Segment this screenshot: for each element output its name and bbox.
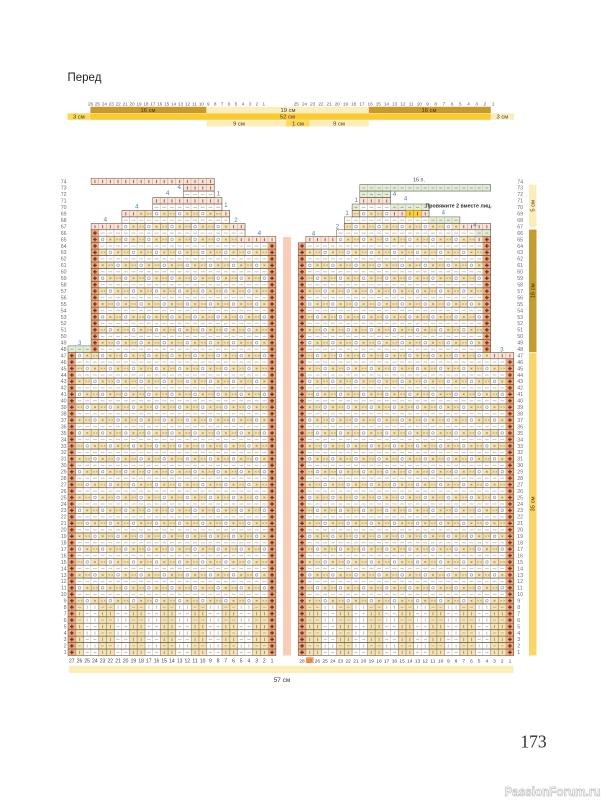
svg-text:1: 1 xyxy=(64,650,67,656)
svg-text:7: 7 xyxy=(443,102,446,107)
svg-text:25: 25 xyxy=(517,495,523,501)
svg-text:67: 67 xyxy=(517,224,523,230)
svg-text:23: 23 xyxy=(109,102,115,107)
svg-text:31: 31 xyxy=(61,457,67,463)
svg-text:63: 63 xyxy=(61,250,67,256)
svg-text:21: 21 xyxy=(517,521,523,527)
svg-text:1: 1 xyxy=(263,102,266,107)
svg-text:28: 28 xyxy=(517,476,523,482)
svg-text:15: 15 xyxy=(376,102,382,107)
svg-text:21: 21 xyxy=(61,521,67,527)
svg-text:1: 1 xyxy=(217,191,221,198)
svg-text:14: 14 xyxy=(384,102,390,107)
svg-text:49: 49 xyxy=(517,341,523,347)
svg-text:18: 18 xyxy=(517,541,523,547)
svg-text:59: 59 xyxy=(61,276,67,282)
svg-text:2: 2 xyxy=(64,644,67,650)
svg-text:9: 9 xyxy=(447,658,450,664)
svg-text:56: 56 xyxy=(61,295,67,301)
svg-text:55: 55 xyxy=(517,302,523,308)
svg-text:17: 17 xyxy=(146,658,152,664)
svg-text:4: 4 xyxy=(442,209,446,216)
svg-text:16: 16 xyxy=(154,658,160,664)
svg-text:4: 4 xyxy=(393,191,397,198)
svg-text:23: 23 xyxy=(100,658,106,664)
svg-text:18: 18 xyxy=(138,658,144,664)
svg-text:38: 38 xyxy=(517,412,523,418)
svg-text:17: 17 xyxy=(359,102,365,107)
svg-text:33: 33 xyxy=(61,444,67,450)
svg-text:12: 12 xyxy=(423,658,429,664)
svg-text:43: 43 xyxy=(61,379,67,385)
svg-text:34: 34 xyxy=(517,437,523,443)
svg-text:3 см: 3 см xyxy=(73,115,85,121)
svg-text:70: 70 xyxy=(517,205,523,211)
svg-text:1 см: 1 см xyxy=(292,122,304,128)
svg-text:10: 10 xyxy=(438,658,444,664)
svg-text:56: 56 xyxy=(517,295,523,301)
svg-text:46: 46 xyxy=(61,360,67,366)
svg-text:3: 3 xyxy=(64,637,67,643)
svg-text:2: 2 xyxy=(256,102,259,107)
svg-text:25: 25 xyxy=(322,658,328,664)
svg-text:68: 68 xyxy=(517,218,523,224)
svg-text:4: 4 xyxy=(473,222,477,229)
svg-text:21: 21 xyxy=(327,102,333,107)
svg-text:67: 67 xyxy=(61,224,67,230)
svg-text:6: 6 xyxy=(228,102,231,107)
svg-text:11: 11 xyxy=(192,102,197,107)
svg-text:40: 40 xyxy=(61,399,67,405)
svg-text:5: 5 xyxy=(64,624,67,630)
svg-text:24: 24 xyxy=(102,102,108,107)
svg-text:72: 72 xyxy=(61,192,67,198)
svg-text:69: 69 xyxy=(517,212,523,218)
svg-text:8: 8 xyxy=(217,658,220,664)
svg-text:23: 23 xyxy=(61,508,67,514)
svg-text:47: 47 xyxy=(517,354,523,360)
svg-text:44: 44 xyxy=(61,373,67,379)
svg-text:37: 37 xyxy=(61,418,67,424)
svg-text:65: 65 xyxy=(61,237,67,243)
svg-text:50: 50 xyxy=(517,334,523,340)
svg-text:53: 53 xyxy=(517,315,523,321)
svg-text:69: 69 xyxy=(61,212,67,218)
svg-text:53: 53 xyxy=(61,315,67,321)
svg-text:15: 15 xyxy=(61,560,67,566)
svg-text:19: 19 xyxy=(369,658,375,664)
svg-text:18: 18 xyxy=(61,541,67,547)
svg-text:1: 1 xyxy=(509,658,512,664)
svg-text:70: 70 xyxy=(61,205,67,211)
svg-text:9: 9 xyxy=(517,599,520,605)
svg-text:61: 61 xyxy=(61,263,67,269)
svg-text:11: 11 xyxy=(409,102,414,107)
svg-text:68: 68 xyxy=(61,218,67,224)
svg-text:9: 9 xyxy=(207,102,210,107)
svg-text:3: 3 xyxy=(255,658,258,664)
svg-text:23: 23 xyxy=(517,508,523,514)
svg-text:8: 8 xyxy=(517,605,520,611)
svg-text:4: 4 xyxy=(258,230,262,237)
svg-text:20: 20 xyxy=(517,528,523,534)
svg-text:32: 32 xyxy=(517,450,523,456)
svg-text:7: 7 xyxy=(517,611,520,617)
svg-text:4: 4 xyxy=(166,190,170,197)
svg-text:12: 12 xyxy=(400,102,406,107)
svg-text:47: 47 xyxy=(61,354,67,360)
svg-text:16 п.: 16 п. xyxy=(413,178,425,184)
svg-text:23: 23 xyxy=(338,658,344,664)
svg-text:71: 71 xyxy=(517,199,523,205)
svg-text:1: 1 xyxy=(345,210,349,217)
svg-text:9: 9 xyxy=(426,102,429,107)
svg-text:4: 4 xyxy=(64,631,67,637)
svg-text:45: 45 xyxy=(517,366,523,372)
svg-text:27: 27 xyxy=(61,482,67,488)
svg-text:6: 6 xyxy=(64,618,67,624)
svg-text:48: 48 xyxy=(61,347,67,353)
svg-text:4: 4 xyxy=(517,631,520,637)
svg-text:52 см: 52 см xyxy=(280,115,295,121)
svg-text:27: 27 xyxy=(307,658,313,664)
svg-text:64: 64 xyxy=(517,244,523,250)
svg-text:3 см: 3 см xyxy=(497,115,509,121)
svg-text:22: 22 xyxy=(108,658,114,664)
svg-text:9 см: 9 см xyxy=(233,122,245,128)
svg-text:24: 24 xyxy=(517,502,523,508)
svg-text:57: 57 xyxy=(517,289,523,295)
svg-text:Провяжите 2 вместе лиц.: Провяжите 2 вместе лиц. xyxy=(426,204,493,210)
svg-text:44: 44 xyxy=(517,373,523,379)
svg-text:27: 27 xyxy=(69,658,75,664)
svg-text:2: 2 xyxy=(234,217,238,224)
svg-text:6: 6 xyxy=(470,658,473,664)
svg-text:46: 46 xyxy=(517,360,523,366)
svg-text:50: 50 xyxy=(61,334,67,340)
svg-text:33: 33 xyxy=(517,444,523,450)
svg-text:8: 8 xyxy=(64,605,67,611)
svg-text:4: 4 xyxy=(485,658,488,664)
svg-text:173: 173 xyxy=(520,732,547,752)
svg-text:9 см: 9 см xyxy=(333,122,345,128)
svg-text:4: 4 xyxy=(404,195,408,202)
svg-text:15: 15 xyxy=(517,560,523,566)
svg-text:35: 35 xyxy=(517,431,523,437)
svg-text:22: 22 xyxy=(346,658,352,664)
svg-text:1: 1 xyxy=(517,650,520,656)
svg-text:14: 14 xyxy=(407,658,413,664)
svg-text:18: 18 xyxy=(351,102,357,107)
svg-text:66: 66 xyxy=(61,231,67,237)
svg-text:73: 73 xyxy=(61,186,67,192)
svg-text:35 см: 35 см xyxy=(531,497,537,512)
svg-text:38: 38 xyxy=(61,412,67,418)
svg-text:1: 1 xyxy=(224,202,228,209)
svg-text:13: 13 xyxy=(415,658,421,664)
svg-text:22: 22 xyxy=(517,515,523,521)
svg-text:3: 3 xyxy=(500,347,504,354)
svg-text:16: 16 xyxy=(517,553,523,559)
svg-text:16: 16 xyxy=(61,553,67,559)
svg-text:26: 26 xyxy=(61,489,67,495)
svg-text:9: 9 xyxy=(209,658,212,664)
svg-text:7: 7 xyxy=(64,611,67,617)
svg-text:74: 74 xyxy=(517,179,523,185)
svg-text:7: 7 xyxy=(224,658,227,664)
svg-text:28: 28 xyxy=(61,476,67,482)
svg-text:23: 23 xyxy=(310,102,316,107)
svg-text:36: 36 xyxy=(61,424,67,430)
svg-text:59: 59 xyxy=(517,276,523,282)
svg-text:14: 14 xyxy=(61,566,67,572)
svg-text:51: 51 xyxy=(517,328,523,334)
svg-text:5: 5 xyxy=(459,102,462,107)
svg-text:41: 41 xyxy=(517,392,523,398)
svg-text:40: 40 xyxy=(517,399,523,405)
svg-text:PassionForum.ru: PassionForum.ru xyxy=(505,784,601,799)
svg-text:17: 17 xyxy=(384,658,390,664)
svg-text:17: 17 xyxy=(61,547,67,553)
svg-text:18: 18 xyxy=(376,658,382,664)
svg-text:4: 4 xyxy=(242,102,245,107)
svg-text:2: 2 xyxy=(501,658,504,664)
svg-text:30: 30 xyxy=(61,463,67,469)
svg-text:10: 10 xyxy=(417,102,423,107)
svg-text:3: 3 xyxy=(493,658,496,664)
svg-text:10: 10 xyxy=(199,102,205,107)
svg-text:57: 57 xyxy=(61,289,67,295)
svg-text:8: 8 xyxy=(434,102,437,107)
svg-text:48: 48 xyxy=(517,347,523,353)
svg-text:12: 12 xyxy=(517,579,523,585)
svg-text:25: 25 xyxy=(95,102,101,107)
svg-text:21: 21 xyxy=(353,658,359,664)
svg-text:18: 18 xyxy=(143,102,149,107)
svg-text:54: 54 xyxy=(61,308,67,314)
svg-text:57 см: 57 см xyxy=(274,677,290,684)
svg-text:13: 13 xyxy=(517,573,523,579)
svg-text:16: 16 xyxy=(392,658,398,664)
svg-text:12: 12 xyxy=(185,658,191,664)
svg-text:45: 45 xyxy=(61,366,67,372)
svg-text:35: 35 xyxy=(61,431,67,437)
svg-text:4: 4 xyxy=(248,658,251,664)
svg-text:3: 3 xyxy=(517,637,520,643)
svg-text:20: 20 xyxy=(123,658,129,664)
svg-text:15: 15 xyxy=(164,102,170,107)
svg-text:7: 7 xyxy=(462,658,465,664)
svg-text:20: 20 xyxy=(130,102,136,107)
svg-text:4: 4 xyxy=(467,102,470,107)
svg-text:14: 14 xyxy=(517,566,523,572)
svg-text:26: 26 xyxy=(77,658,83,664)
svg-text:36: 36 xyxy=(517,424,523,430)
svg-text:2: 2 xyxy=(263,658,266,664)
svg-text:12: 12 xyxy=(61,579,67,585)
svg-text:25: 25 xyxy=(61,495,67,501)
svg-text:22: 22 xyxy=(61,515,67,521)
svg-text:49: 49 xyxy=(61,341,67,347)
svg-text:24: 24 xyxy=(61,502,67,508)
svg-text:1: 1 xyxy=(492,102,495,107)
svg-text:20: 20 xyxy=(335,102,341,107)
svg-text:72: 72 xyxy=(517,192,523,198)
svg-text:54: 54 xyxy=(517,308,523,314)
svg-text:5: 5 xyxy=(478,658,481,664)
svg-text:15: 15 xyxy=(399,658,405,664)
svg-text:9: 9 xyxy=(64,599,67,605)
svg-text:4: 4 xyxy=(312,231,316,238)
svg-text:19: 19 xyxy=(61,534,67,540)
svg-text:24: 24 xyxy=(92,658,98,664)
svg-text:28: 28 xyxy=(299,658,305,664)
svg-text:19: 19 xyxy=(131,658,137,664)
svg-text:10: 10 xyxy=(517,592,523,598)
svg-text:3: 3 xyxy=(475,102,478,107)
svg-text:21: 21 xyxy=(115,658,121,664)
svg-text:17: 17 xyxy=(517,547,523,553)
svg-text:51: 51 xyxy=(61,328,67,334)
svg-text:27: 27 xyxy=(517,482,523,488)
svg-text:39: 39 xyxy=(517,405,523,411)
svg-text:5: 5 xyxy=(240,658,243,664)
svg-text:20: 20 xyxy=(61,528,67,534)
svg-text:13: 13 xyxy=(178,102,184,107)
svg-text:60: 60 xyxy=(61,270,67,276)
svg-text:11: 11 xyxy=(517,586,523,592)
svg-text:13: 13 xyxy=(392,102,398,107)
svg-text:31: 31 xyxy=(517,457,523,463)
svg-text:4: 4 xyxy=(177,184,181,191)
svg-text:2: 2 xyxy=(517,644,520,650)
svg-text:14: 14 xyxy=(169,658,175,664)
svg-text:5: 5 xyxy=(235,102,238,107)
svg-text:22: 22 xyxy=(116,102,122,107)
svg-text:16 см: 16 см xyxy=(141,108,156,114)
svg-text:34: 34 xyxy=(61,437,67,443)
svg-text:11: 11 xyxy=(192,658,197,664)
svg-text:41: 41 xyxy=(61,392,67,398)
svg-text:42: 42 xyxy=(61,386,67,392)
svg-text:39: 39 xyxy=(61,405,67,411)
svg-text:11: 11 xyxy=(430,658,435,664)
svg-text:Перед: Перед xyxy=(68,72,102,84)
svg-text:65: 65 xyxy=(517,237,523,243)
svg-text:26: 26 xyxy=(517,489,523,495)
svg-text:26: 26 xyxy=(315,658,321,664)
svg-text:17: 17 xyxy=(150,102,156,107)
svg-text:19: 19 xyxy=(517,534,523,540)
svg-text:10: 10 xyxy=(61,592,67,598)
svg-text:60: 60 xyxy=(517,270,523,276)
svg-text:4: 4 xyxy=(135,203,139,210)
svg-text:6: 6 xyxy=(451,102,454,107)
svg-text:13: 13 xyxy=(61,573,67,579)
svg-text:71: 71 xyxy=(61,199,67,205)
svg-text:24: 24 xyxy=(330,658,336,664)
svg-text:25: 25 xyxy=(84,658,90,664)
svg-text:24: 24 xyxy=(302,102,308,107)
svg-text:73: 73 xyxy=(517,186,523,192)
svg-text:20: 20 xyxy=(361,658,367,664)
svg-text:21: 21 xyxy=(123,102,129,107)
svg-text:52: 52 xyxy=(61,321,67,327)
svg-text:22: 22 xyxy=(318,102,324,107)
svg-text:10: 10 xyxy=(200,658,206,664)
svg-text:5: 5 xyxy=(517,624,520,630)
svg-text:62: 62 xyxy=(61,257,67,263)
svg-text:14: 14 xyxy=(171,102,177,107)
svg-text:29: 29 xyxy=(517,470,523,476)
svg-text:62: 62 xyxy=(517,257,523,263)
svg-text:2: 2 xyxy=(484,102,487,107)
svg-text:66: 66 xyxy=(517,231,523,237)
svg-text:58: 58 xyxy=(517,283,523,289)
svg-text:8: 8 xyxy=(214,102,217,107)
svg-text:30: 30 xyxy=(517,463,523,469)
svg-text:16 см: 16 см xyxy=(531,283,537,298)
svg-text:64: 64 xyxy=(61,244,67,250)
svg-text:32: 32 xyxy=(61,450,67,456)
svg-text:43: 43 xyxy=(517,379,523,385)
svg-text:29: 29 xyxy=(61,470,67,476)
svg-text:42: 42 xyxy=(517,386,523,392)
svg-text:58: 58 xyxy=(61,283,67,289)
svg-text:16 см: 16 см xyxy=(422,108,437,114)
svg-text:55: 55 xyxy=(61,302,67,308)
svg-text:63: 63 xyxy=(517,250,523,256)
svg-text:12: 12 xyxy=(185,102,191,107)
svg-text:74: 74 xyxy=(61,179,67,185)
svg-text:5 см: 5 см xyxy=(531,200,537,212)
svg-text:1: 1 xyxy=(355,197,359,204)
svg-text:15: 15 xyxy=(161,658,167,664)
svg-text:2: 2 xyxy=(336,224,340,231)
svg-text:52: 52 xyxy=(517,321,523,327)
svg-text:61: 61 xyxy=(517,263,523,269)
svg-text:6: 6 xyxy=(232,658,235,664)
svg-text:26: 26 xyxy=(88,102,94,107)
svg-text:19: 19 xyxy=(136,102,142,107)
svg-text:37: 37 xyxy=(517,418,523,424)
svg-text:19: 19 xyxy=(343,102,349,107)
svg-text:13: 13 xyxy=(177,658,183,664)
svg-text:1: 1 xyxy=(271,658,274,664)
svg-text:25: 25 xyxy=(294,102,300,107)
svg-text:11: 11 xyxy=(61,586,67,592)
svg-text:8: 8 xyxy=(455,658,458,664)
svg-text:6: 6 xyxy=(517,618,520,624)
svg-text:7: 7 xyxy=(221,102,224,107)
svg-text:16: 16 xyxy=(157,102,163,107)
svg-text:3: 3 xyxy=(78,340,82,347)
svg-text:4: 4 xyxy=(104,217,108,224)
svg-text:19 см: 19 см xyxy=(281,108,296,114)
svg-text:16: 16 xyxy=(368,102,374,107)
svg-text:3: 3 xyxy=(249,102,252,107)
